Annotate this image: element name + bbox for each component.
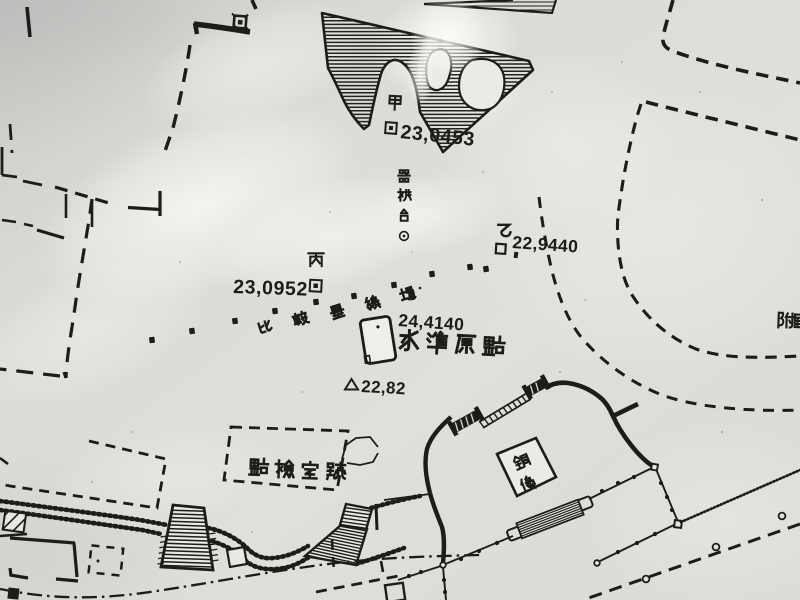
svg-text:23,0952: 23,0952 [233, 276, 308, 301]
svg-text:22,82: 22,82 [361, 377, 406, 398]
